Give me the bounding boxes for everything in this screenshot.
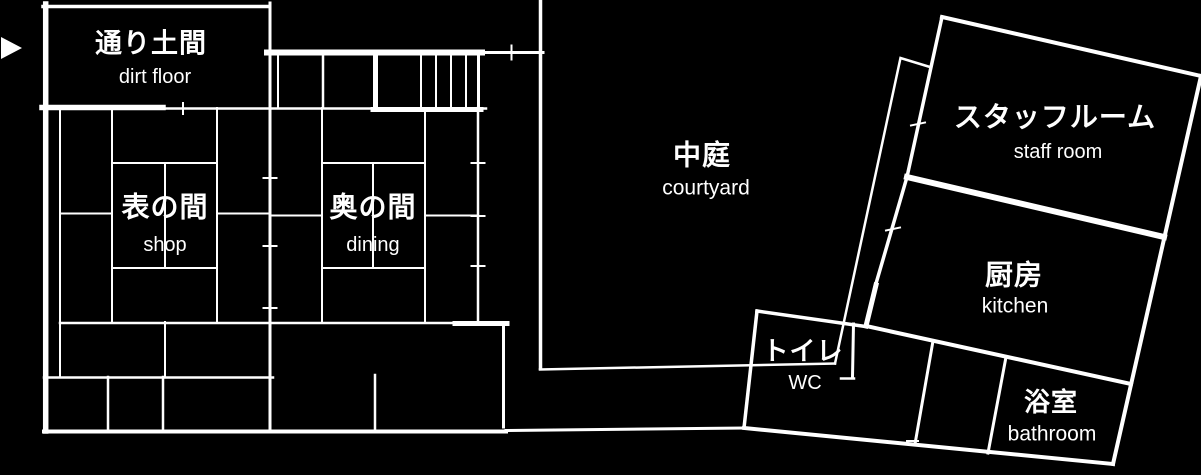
room-label-kitchen: 厨房 kitchen: [982, 259, 1049, 318]
room-label-dirt-floor-en: dirt floor: [119, 66, 192, 88]
room-label-staff-room-en: staff room: [1014, 141, 1103, 163]
room-label-staff-room-jp: スタッフルーム: [954, 101, 1156, 134]
room-label-shop-en: shop: [143, 234, 186, 256]
floor-plan-canvas: 通り土間 dirt floor 表の間 shop 奥の間 dining 中庭 c…: [0, 0, 1201, 475]
room-label-dirt-floor-jp: 通り土間: [95, 29, 207, 60]
room-label-dining-en: dining: [346, 234, 399, 256]
room-label-shop-jp: 表の間: [121, 191, 208, 224]
room-label-courtyard-en: courtyard: [662, 177, 750, 200]
room-label-dining-jp: 奥の間: [329, 191, 416, 224]
room-label-courtyard-jp: 中庭: [673, 139, 731, 172]
room-label-kitchen-en: kitchen: [982, 295, 1049, 318]
room-label-bathroom-jp: 浴室: [1024, 387, 1078, 418]
room-label-wc-en: WC: [788, 372, 821, 394]
room-label-bathroom-en: bathroom: [1008, 423, 1097, 446]
room-label-kitchen-jp: 厨房: [985, 259, 1043, 292]
room-label-wc-jp: トイレ: [762, 337, 843, 367]
